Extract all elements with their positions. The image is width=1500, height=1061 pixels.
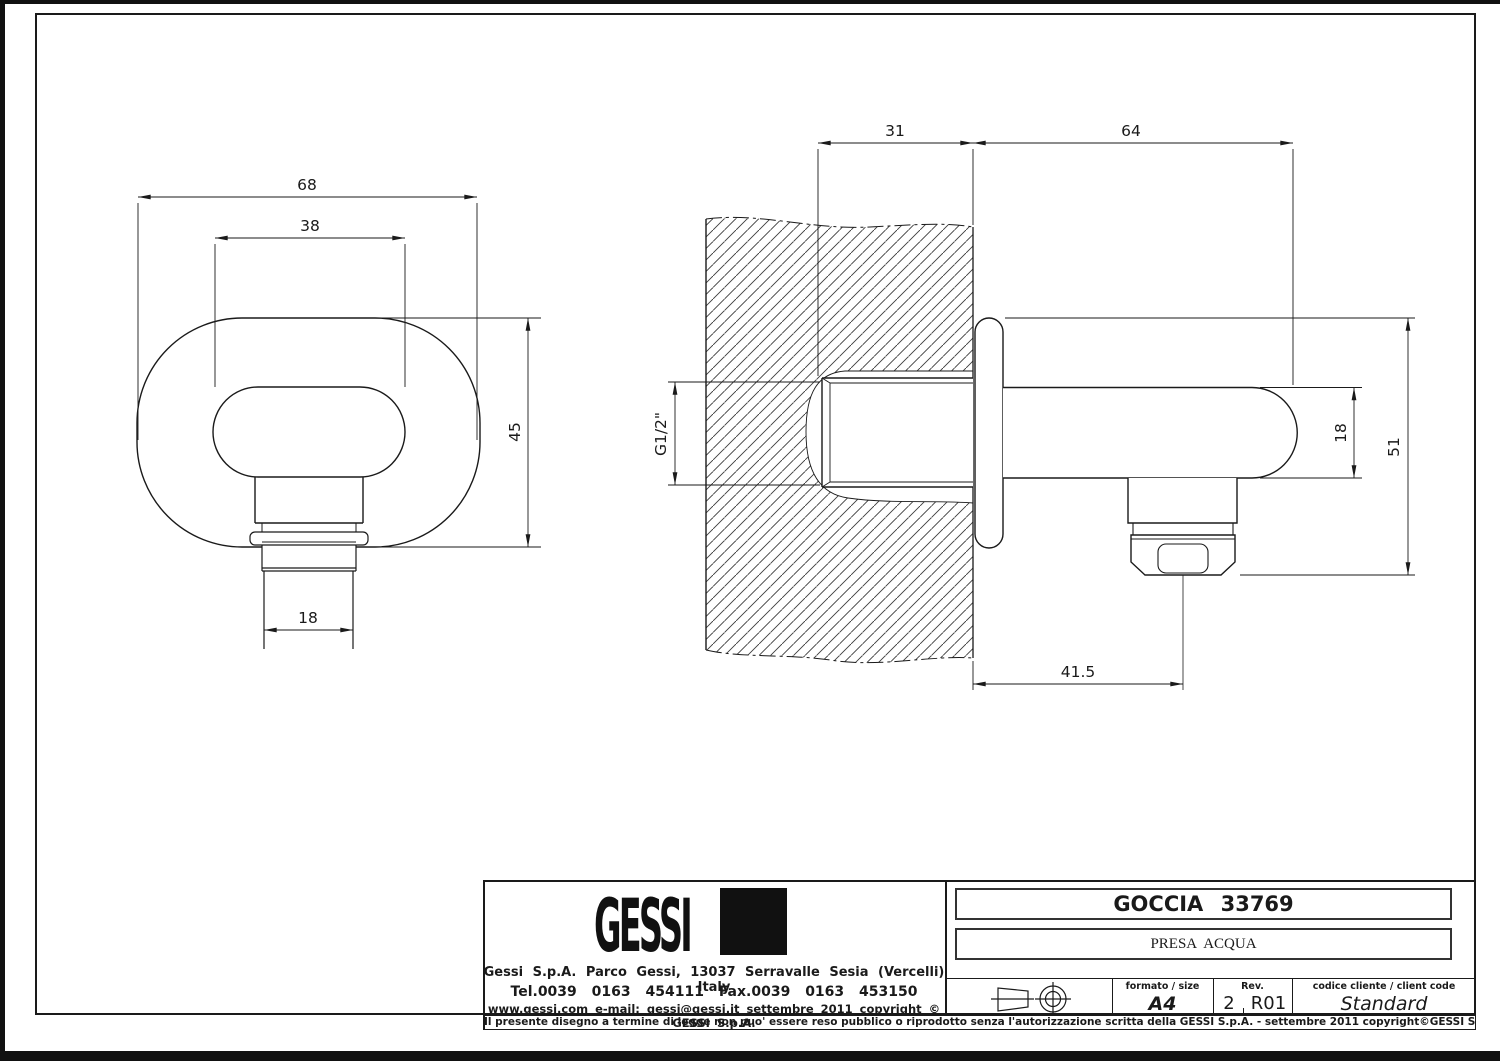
gessi-logo: GESSI (594, 884, 667, 971)
manufacturer-phone: Tel.0039 0163 454111 Fax.0039 0163 45315… (483, 984, 945, 1000)
product-type: PRESA ACQUA (955, 928, 1452, 960)
scan-edge-bottom (0, 1051, 1500, 1061)
technical-drawing-page: { "ink": "#1a1a1a", "dims": { "front_wid… (0, 0, 1500, 1061)
legal-notice: Il presente disegno a termine di legge n… (483, 1015, 1476, 1030)
client-code-label: codice cliente / client code (1292, 981, 1476, 992)
scan-edge-left (0, 0, 5, 1061)
revision-number: 2 (1213, 993, 1245, 1014)
revision-code: R01 (1245, 993, 1292, 1014)
format-value: A4 (1112, 993, 1213, 1015)
title-block-row-border (945, 978, 1476, 979)
gessi-logo-square-icon (720, 888, 787, 955)
drawing-frame (35, 13, 1476, 1015)
client-code-value: Standard (1292, 993, 1476, 1015)
product-name: GOCCIA 33769 (955, 888, 1452, 920)
scan-edge-top (0, 0, 1500, 4)
revision-label: Rev. (1213, 981, 1292, 992)
format-label: formato / size (1112, 981, 1213, 992)
revision-tick (1243, 1008, 1244, 1015)
title-block-divider (945, 880, 947, 1015)
title-block-top-border (483, 880, 1476, 882)
